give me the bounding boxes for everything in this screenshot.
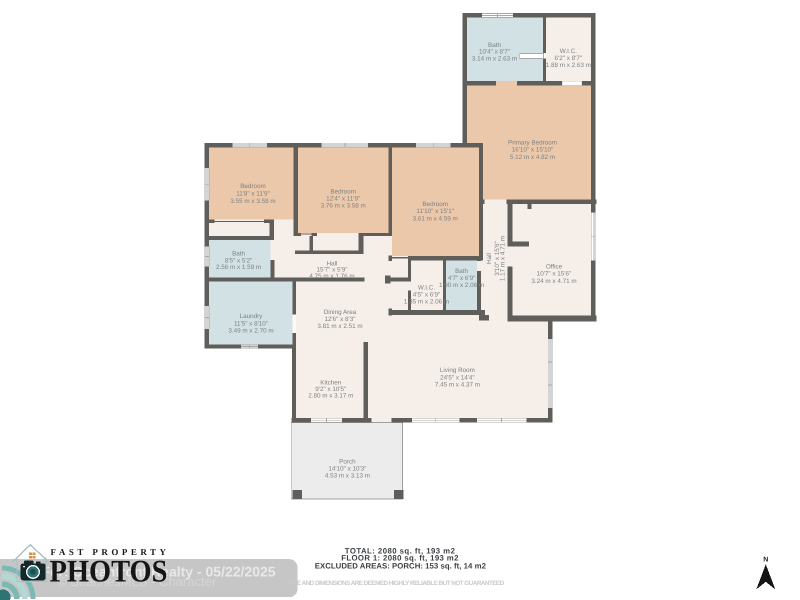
svg-text:11'8" x 11'9": 11'8" x 11'9"	[236, 191, 270, 198]
svg-text:1.17 m x 4.71 m: 1.17 m x 4.71 m	[500, 236, 507, 281]
svg-text:3.14 m x 2.63 m: 3.14 m x 2.63 m	[472, 56, 517, 63]
svg-text:1.88 m x 2.63 m: 1.88 m x 2.63 m	[546, 62, 591, 69]
svg-text:11'5" x 8'10": 11'5" x 8'10"	[234, 320, 268, 327]
svg-text:11'10" x 15'1": 11'10" x 15'1"	[416, 208, 454, 215]
svg-text:12'4" x 11'9": 12'4" x 11'9"	[326, 196, 360, 203]
svg-text:16'10" x 15'10": 16'10" x 15'10"	[512, 147, 554, 154]
svg-text:Living Room: Living Room	[440, 367, 475, 374]
svg-text:14'10" x 10'3": 14'10" x 10'3"	[328, 466, 366, 473]
svg-text:3.24 m x 4.71 m: 3.24 m x 4.71 m	[531, 278, 576, 285]
svg-text:Bath: Bath	[455, 268, 468, 275]
svg-text:7.45 m x 4.37 m: 7.45 m x 4.37 m	[435, 381, 480, 388]
svg-text:SIZE AND DIMENSIONS ARE DEEMED: SIZE AND DIMENSIONS ARE DEEMED HIGHLY RE…	[289, 580, 505, 587]
svg-text:24'5" x 14'4": 24'5" x 14'4"	[440, 374, 475, 381]
svg-text:Office: Office	[546, 263, 563, 270]
svg-text:N: N	[763, 557, 768, 564]
svg-text:3.76 m x 3.58 m: 3.76 m x 3.58 m	[321, 203, 366, 210]
svg-text:4.75 m x 1.76 m: 4.75 m x 1.76 m	[309, 273, 354, 280]
svg-text:2.56 m x 1.59 m: 2.56 m x 1.59 m	[216, 264, 261, 271]
svg-text:4.53 m x 3.13 m: 4.53 m x 3.13 m	[325, 473, 370, 480]
svg-text:Laundry: Laundry	[240, 313, 264, 320]
svg-text:5.12 m x 4.82 m: 5.12 m x 4.82 m	[510, 154, 555, 161]
svg-text:Primary Bedroom: Primary Bedroom	[508, 140, 557, 147]
svg-text:3.81 m x 2.51 m: 3.81 m x 2.51 m	[317, 323, 362, 330]
svg-text:2.80 m x 3.17 m: 2.80 m x 3.17 m	[308, 393, 353, 400]
svg-text:Porch: Porch	[339, 459, 356, 466]
svg-text:1.35 m x 2.06 m: 1.35 m x 2.06 m	[404, 298, 449, 305]
svg-text:Bedroom: Bedroom	[422, 201, 448, 208]
svg-text:3.61 m x 4.59 m: 3.61 m x 4.59 m	[413, 215, 458, 222]
svg-text:4'7" x 6'9": 4'7" x 6'9"	[448, 275, 476, 282]
svg-text:EXCLUDED AREAS: PORCH: 153 sq.: EXCLUDED AREAS: PORCH: 153 sq. ft, 14 m2	[315, 561, 487, 570]
svg-text:1.90 m x 2.06 m: 1.90 m x 2.06 m	[439, 282, 484, 289]
svg-text:PHOTOS: PHOTOS	[50, 554, 168, 589]
svg-text:Bedroom: Bedroom	[240, 183, 266, 190]
svg-text:3.55 m x 3.58 m: 3.55 m x 3.58 m	[230, 198, 275, 205]
svg-text:Bedroom: Bedroom	[330, 188, 356, 195]
svg-text:10'7" x 15'6": 10'7" x 15'6"	[537, 271, 572, 278]
svg-text:3.49 m x 2.70 m: 3.49 m x 2.70 m	[228, 328, 273, 335]
svg-text:Hall: Hall	[486, 253, 493, 264]
